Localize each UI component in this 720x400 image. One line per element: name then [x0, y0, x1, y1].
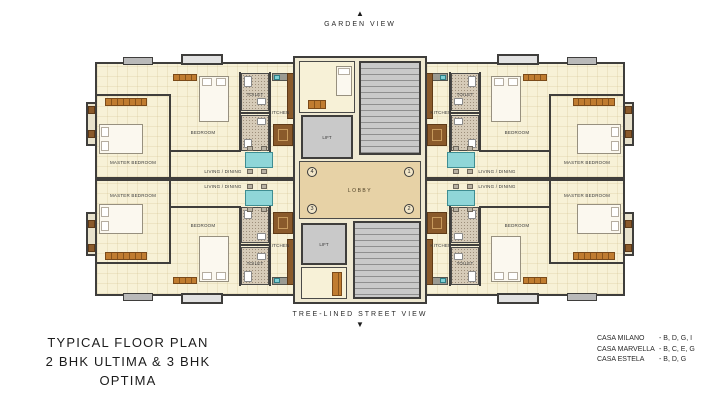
unit-number-badge: 4: [307, 167, 317, 177]
unit-label-layer: MASTER BEDROOM BEDROOM TOILET KITCHEN LI…: [427, 181, 623, 294]
deck-seat: [88, 106, 95, 114]
plan-title-line1: TYPICAL FLOOR PLAN: [18, 334, 238, 353]
lobby: LOBBY 4 1 3 2: [299, 161, 421, 219]
legend-tower-wings: - B, D, G: [659, 355, 686, 366]
staircase-top: [359, 61, 421, 155]
deck-seat: [625, 106, 632, 114]
room-label-living-dining: LIVING / DINING: [457, 184, 537, 189]
deck-seat: [88, 244, 95, 252]
utility-room: [299, 61, 355, 113]
service-ledge: [567, 293, 597, 301]
legend-tower-wings: - B, D, G, I: [659, 334, 692, 345]
cabinet: [308, 100, 326, 109]
room-label-living-dining: LIVING / DINING: [183, 169, 263, 174]
balcony: [181, 293, 223, 304]
unit-number-badge: 2: [404, 204, 414, 214]
room-label-toilet: TOILET: [240, 92, 270, 97]
room-label-master-bedroom: MASTER BEDROOM: [99, 160, 167, 165]
utility-room: [301, 267, 347, 299]
room-label-kitchen: KITCHEN: [425, 243, 457, 248]
cabinet: [332, 272, 342, 296]
room-label-master-bedroom: MASTER BEDROOM: [99, 193, 167, 198]
legend-tower-name: CASA MARVELLA: [597, 345, 659, 356]
legend-tower-name: CASA MILANO: [597, 334, 659, 345]
unit-top-right: MASTER BEDROOM BEDROOM TOILET KITCHEN LI…: [425, 62, 625, 179]
unit-top-left: MASTER BEDROOM BEDROOM TOILET KITCHEN LI…: [95, 62, 295, 179]
balcony: [497, 293, 539, 304]
staircase-bottom: [353, 221, 421, 299]
garden-view-label: GARDEN VIEW: [280, 21, 440, 28]
deck-seat: [88, 130, 95, 138]
tower-legend: CASA MILANO - B, D, G, I CASA MARVELLA -…: [597, 334, 715, 366]
legend-tower-name: CASA ESTELA: [597, 355, 659, 366]
room-label-toilet: TOILET: [240, 261, 270, 266]
unit-label-layer: MASTER BEDROOM BEDROOM TOILET KITCHEN LI…: [97, 64, 293, 177]
deck-seat: [88, 220, 95, 228]
room-label-bedroom: BEDROOM: [489, 130, 545, 135]
street-view-label: TREE-LINED STREET VIEW: [280, 311, 440, 318]
unit-bottom-left: MASTER BEDROOM BEDROOM TOILET KITCHEN LI…: [95, 179, 295, 296]
room-label-living-dining: LIVING / DINING: [457, 169, 537, 174]
legend-tower-wings: - B, C, E, G: [659, 345, 695, 356]
plan-title: TYPICAL FLOOR PLAN 2 BHK ULTIMA & 3 BHK …: [18, 334, 238, 391]
service-ledge: [123, 293, 153, 301]
room-label-kitchen: KITCHEN: [263, 110, 295, 115]
unit-number-badge: 3: [307, 204, 317, 214]
unit-number-badge: 1: [404, 167, 414, 177]
deck-seat: [625, 220, 632, 228]
room-label-master-bedroom: MASTER BEDROOM: [553, 193, 621, 198]
pillow: [338, 68, 350, 75]
room-label-living-dining: LIVING / DINING: [183, 184, 263, 189]
lift: LIFT: [301, 223, 347, 265]
room-label-toilet: TOILET: [450, 261, 480, 266]
unit-label-layer: MASTER BEDROOM BEDROOM TOILET KITCHEN LI…: [97, 181, 293, 294]
plan-title-line2: 2 BHK ULTIMA & 3 BHK OPTIMA: [18, 353, 238, 391]
down-arrow-icon: ▼: [280, 321, 440, 329]
room-label-kitchen: KITCHEN: [263, 243, 295, 248]
lift-label: LIFT: [322, 135, 331, 140]
unit-label-layer: MASTER BEDROOM BEDROOM TOILET KITCHEN LI…: [427, 64, 623, 177]
room-label-master-bedroom: MASTER BEDROOM: [553, 160, 621, 165]
unit-bottom-right: MASTER BEDROOM BEDROOM TOILET KITCHEN LI…: [425, 179, 625, 296]
legend-row: CASA ESTELA - B, D, G: [597, 355, 715, 366]
legend-row: CASA MILANO - B, D, G, I: [597, 334, 715, 345]
up-arrow-icon: ▲: [280, 10, 440, 18]
room-label-bedroom: BEDROOM: [489, 223, 545, 228]
legend-row: CASA MARVELLA - B, C, E, G: [597, 345, 715, 356]
deck-seat: [625, 244, 632, 252]
room-label-toilet: TOILET: [450, 92, 480, 97]
garden-view-compass: ▲ GARDEN VIEW: [280, 10, 440, 28]
deck-seat: [625, 130, 632, 138]
lift: LIFT: [301, 115, 353, 159]
room-label-kitchen: KITCHEN: [425, 110, 457, 115]
room-label-bedroom: BEDROOM: [175, 223, 231, 228]
street-view-compass: TREE-LINED STREET VIEW ▼: [280, 311, 440, 329]
central-core: LIFT LOBBY 4 1 3 2 LIFT: [293, 56, 427, 304]
lift-label: LIFT: [319, 242, 328, 247]
lobby-label: LOBBY: [300, 188, 420, 194]
floor-plan-page: ▲ GARDEN VIEW: [0, 0, 720, 400]
room-label-bedroom: BEDROOM: [175, 130, 231, 135]
